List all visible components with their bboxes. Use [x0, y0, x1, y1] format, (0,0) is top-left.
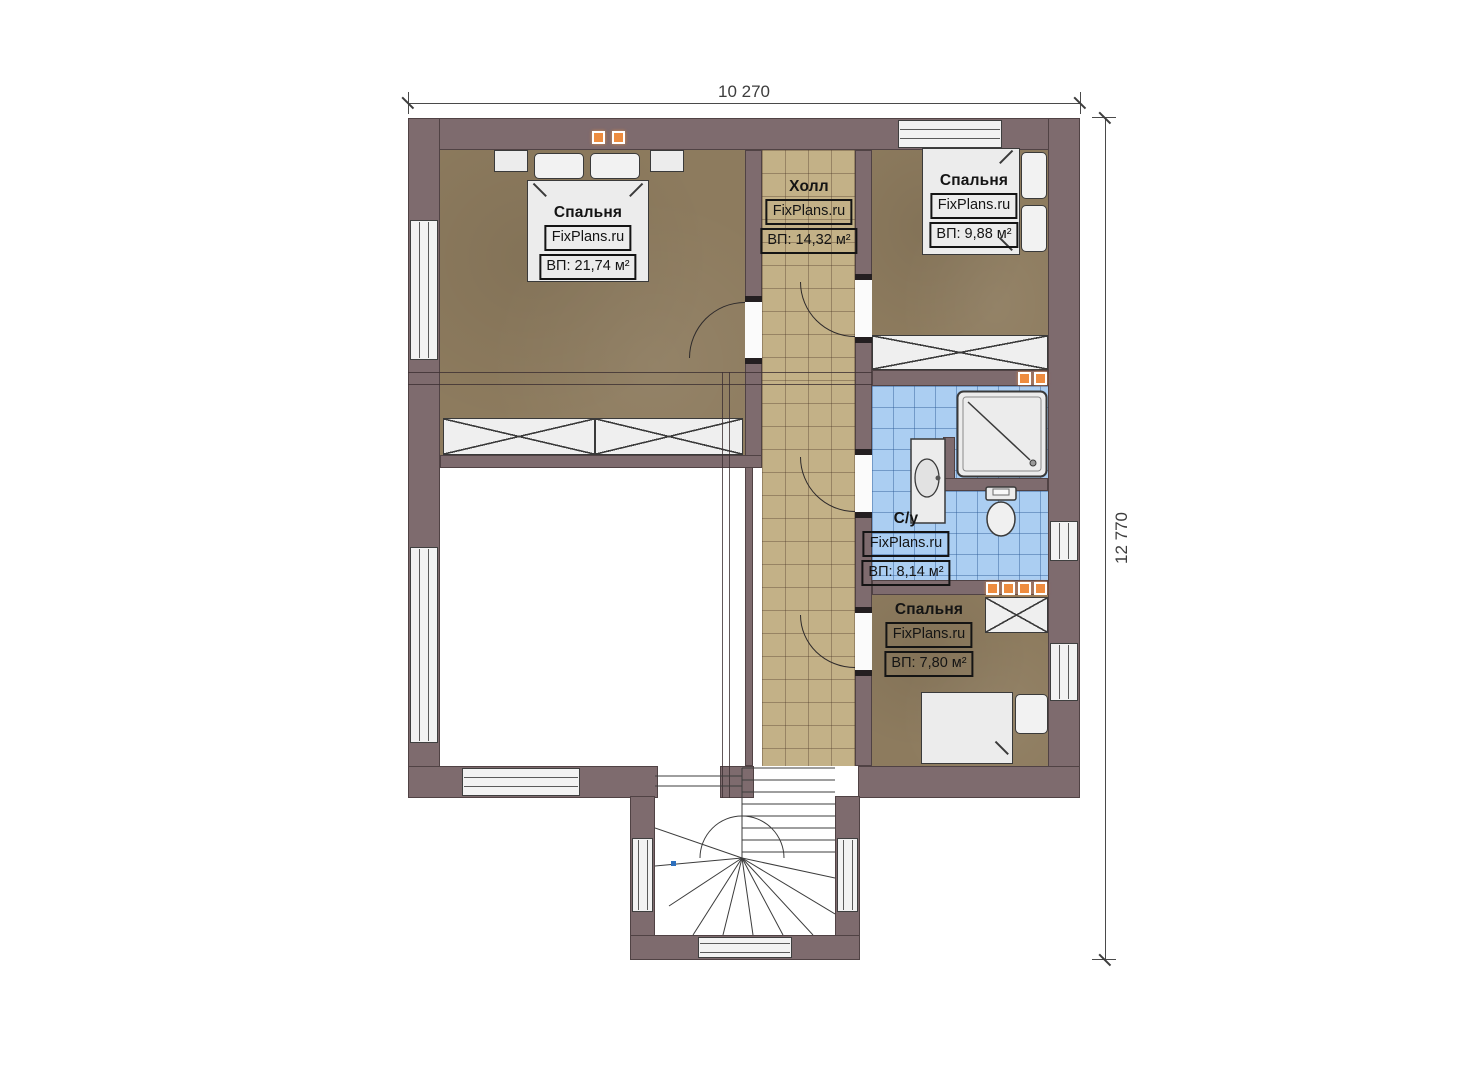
- beam-line: [408, 372, 872, 373]
- dimension-height-line: [1105, 118, 1106, 960]
- window: [632, 838, 653, 912]
- toilet-icon: [983, 486, 1019, 538]
- window: [1050, 521, 1078, 561]
- room-label-bedroom-bottom-right: Спальня FixPlans.ru ВП: 7,80 м²: [884, 601, 973, 677]
- room-label-bathroom: С/у FixPlans.ru ВП: 8,14 м²: [861, 510, 950, 586]
- room-brand: FixPlans.ru: [931, 193, 1018, 219]
- wall-hall-right-d: [855, 670, 872, 766]
- room-area: ВП: 14,32 м²: [760, 228, 857, 254]
- beam-line: [729, 372, 730, 798]
- nightstand: [650, 150, 684, 172]
- vent-marker-icon: [986, 582, 999, 595]
- beam-line: [408, 384, 872, 385]
- door-opening: [855, 613, 872, 670]
- pillow: [534, 153, 584, 179]
- void-partition: [745, 467, 753, 766]
- window: [462, 768, 580, 796]
- room-brand: FixPlans.ru: [766, 199, 853, 225]
- vent-marker-icon: [612, 131, 625, 144]
- vent-marker-icon: [1018, 372, 1031, 385]
- room-name: Спальня: [895, 601, 963, 619]
- pillow: [1015, 694, 1048, 734]
- room-name: С/у: [894, 510, 919, 528]
- vent-marker-icon: [592, 131, 605, 144]
- door-jamb: [855, 670, 872, 676]
- vent-marker-icon: [1018, 582, 1031, 595]
- window: [1050, 643, 1078, 701]
- room-label-hall: Холл FixPlans.ru ВП: 14,32 м²: [760, 178, 857, 254]
- door-jamb: [745, 296, 762, 302]
- door-jamb: [855, 337, 872, 343]
- room-label-bedroom-top-right: Спальня FixPlans.ru ВП: 9,88 м²: [929, 172, 1018, 248]
- wall-bottom-right: [858, 766, 1080, 798]
- room-name: Холл: [789, 178, 829, 196]
- wardrobe: [985, 597, 1048, 633]
- room-brand: FixPlans.ru: [545, 225, 632, 251]
- room-brand: FixPlans.ru: [886, 622, 973, 648]
- dimension-width-label: 10 270: [694, 82, 794, 102]
- wardrobe: [872, 335, 1048, 370]
- room-area: ВП: 9,88 м²: [929, 222, 1018, 248]
- room-brand: FixPlans.ru: [863, 531, 950, 557]
- shower-icon: [956, 390, 1048, 478]
- room-label-bedroom-left: Спальня FixPlans.ru ВП: 21,74 м²: [539, 204, 636, 280]
- room-name: Спальня: [554, 204, 622, 222]
- dimension-width-line: [408, 103, 1080, 104]
- wardrobe: [443, 418, 595, 455]
- wall-hall-left-lower: [745, 360, 762, 467]
- door-jamb: [745, 358, 762, 364]
- staircase: [655, 766, 835, 935]
- door-jamb: [855, 274, 872, 280]
- vent-marker-icon: [1034, 582, 1047, 595]
- vent-marker-icon: [1034, 372, 1047, 385]
- door-jamb: [855, 607, 872, 613]
- vent-marker-icon: [1002, 582, 1015, 595]
- door-opening: [855, 455, 872, 512]
- wall-hall-right-b: [855, 337, 872, 455]
- nightstand: [494, 150, 528, 172]
- room-area: ВП: 21,74 м²: [539, 254, 636, 280]
- window: [410, 220, 438, 360]
- door-jamb: [855, 449, 872, 455]
- window: [410, 547, 438, 743]
- wardrobe: [595, 418, 743, 455]
- room-name: Спальня: [940, 172, 1008, 190]
- window: [898, 120, 1002, 148]
- window: [837, 838, 858, 912]
- dimension-height-label: 12 770: [1112, 498, 1132, 578]
- wall-bedroom-left-bottom: [440, 455, 762, 468]
- bed-single: [921, 692, 1013, 764]
- pillow: [590, 153, 640, 179]
- door-opening: [855, 280, 872, 337]
- pillow: [1021, 205, 1047, 252]
- window: [698, 937, 792, 958]
- pillow: [1021, 152, 1047, 199]
- room-area: ВП: 8,14 м²: [861, 560, 950, 586]
- door-opening: [745, 302, 762, 360]
- floor-plan: 10 270 12 770: [0, 0, 1473, 1080]
- beam-line: [722, 372, 723, 798]
- room-area: ВП: 7,80 м²: [884, 651, 973, 677]
